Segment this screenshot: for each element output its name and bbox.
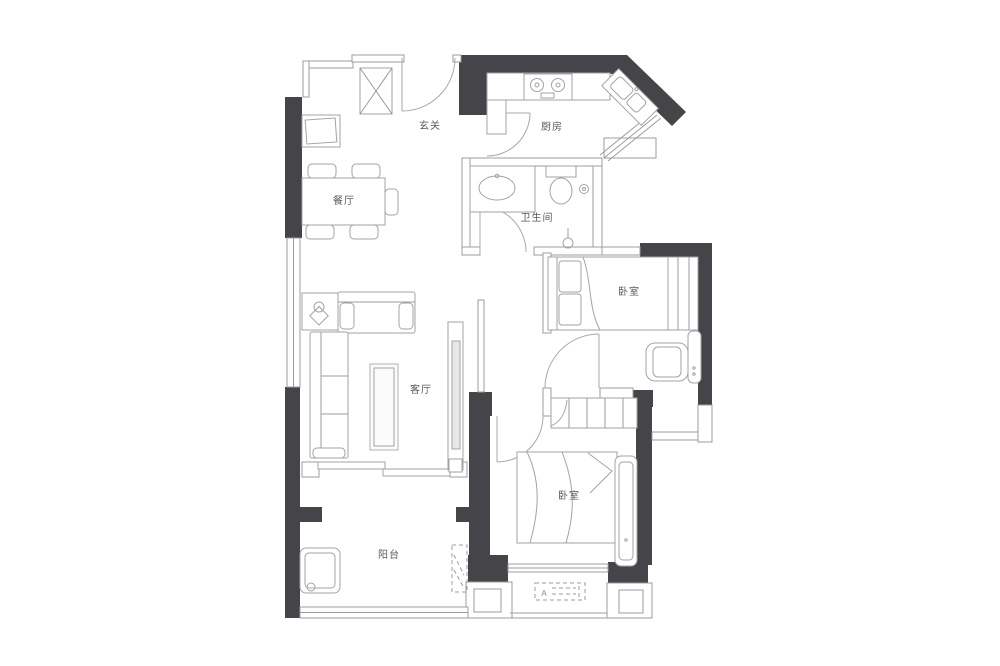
living-furniture — [302, 292, 463, 472]
label-bedroom-north: 卧室 — [618, 285, 640, 298]
wall-left-lower — [285, 387, 300, 618]
label-living: 客厅 — [410, 383, 432, 396]
wall-bathroom-top — [462, 158, 602, 166]
pillar-southwest-inner — [474, 589, 501, 612]
wall-bathroom-left — [462, 158, 470, 255]
floorplan-drawing: A 玄关 厨房 餐厅 卫生间 卧室 客厅 卧室 阳台 — [0, 0, 1000, 666]
wall-left-upper — [285, 97, 302, 238]
ac-marker: A — [535, 583, 585, 600]
shower-head — [563, 228, 573, 248]
bathroom-furniture — [470, 166, 589, 248]
entry-furniture — [360, 68, 392, 114]
wall-tv-pier — [469, 392, 492, 416]
sideboard — [302, 115, 340, 147]
label-entry: 玄关 — [419, 119, 441, 132]
pillar-southeast-inner — [619, 590, 643, 613]
floor-drain — [580, 185, 589, 194]
ac-marker-label: A — [541, 589, 547, 598]
wall-bedroom-south-left-corner — [468, 555, 508, 582]
window-bedroom-south — [508, 564, 608, 618]
wall-balcony-stub-left — [300, 507, 322, 522]
wall-entry-left — [303, 61, 309, 97]
wall-kitchen-left — [459, 57, 487, 115]
desk-chair — [646, 343, 688, 381]
dining-chair — [352, 164, 380, 178]
ledge-east — [652, 432, 698, 440]
label-dining: 餐厅 — [333, 194, 355, 207]
wall-bedroom-north-bottom-thin — [600, 388, 633, 398]
wall-bathroom-bottom-left — [462, 247, 480, 255]
stove — [524, 74, 572, 100]
balcony-sliding-door — [302, 462, 467, 477]
wall-bathroom-right — [593, 166, 602, 253]
wall-entry-top-a — [303, 61, 353, 68]
wall-corridor-left — [478, 300, 484, 392]
dining-chair — [385, 189, 398, 215]
label-bedroom-south: 卧室 — [558, 489, 580, 502]
kitchen-cabinet — [487, 100, 506, 134]
label-balcony: 阳台 — [378, 548, 400, 561]
plant-side-table — [302, 293, 338, 330]
washing-machine — [300, 548, 340, 593]
window-west — [287, 238, 300, 387]
wall-balcony-stub-right — [456, 507, 476, 522]
bed-north — [548, 257, 668, 330]
bathroom-door — [480, 206, 526, 252]
toilet — [546, 166, 576, 204]
wall-bedroom-south-right — [636, 393, 652, 565]
duct-shaft — [604, 138, 656, 158]
water-heater-dashed — [452, 545, 467, 592]
floorplan-canvas: A 玄关 厨房 餐厅 卫生间 卧室 客厅 卧室 阳台 — [0, 0, 1000, 666]
shoe-cabinet — [360, 68, 392, 114]
dining-furniture — [302, 115, 398, 239]
window-balcony-south — [300, 607, 468, 618]
dining-chair — [350, 225, 378, 239]
entry-door — [402, 58, 455, 111]
label-kitchen: 厨房 — [541, 120, 563, 133]
wardrobe-south — [551, 398, 637, 428]
dining-chair — [308, 164, 336, 178]
wall-bedroom-south-left — [469, 416, 490, 555]
column-bedroom-north-bottom — [698, 405, 712, 442]
washbasin — [470, 166, 535, 212]
bedroom-north-furniture — [548, 257, 701, 383]
dresser-south — [615, 456, 637, 566]
label-bathroom: 卫生间 — [521, 211, 554, 224]
wall-bedroom-north-top — [640, 243, 703, 258]
coffee-table — [370, 364, 398, 450]
wall-corridor-top — [602, 247, 640, 255]
dining-chair — [306, 225, 334, 239]
side-unit — [688, 331, 701, 383]
wall-corridor-jog — [543, 388, 551, 416]
bedroom-north-door — [545, 334, 599, 388]
bedroom-south-furniture — [517, 398, 637, 566]
wall-entry-top-c — [453, 55, 461, 62]
tv-stand — [448, 322, 463, 472]
wardrobe-north — [668, 257, 698, 330]
wall-entry-top-b — [352, 55, 404, 62]
